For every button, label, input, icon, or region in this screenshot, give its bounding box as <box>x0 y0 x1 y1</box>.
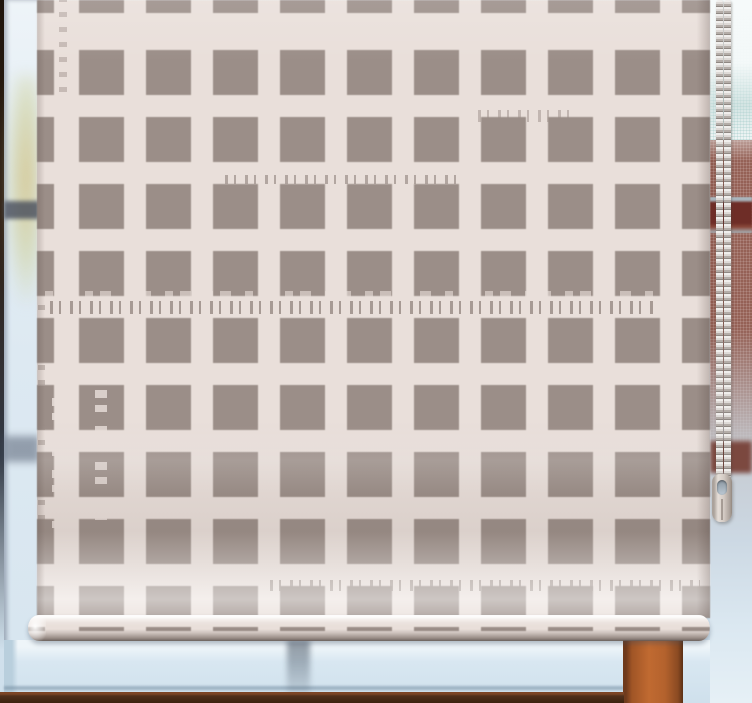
outer-frame-shadow-lower <box>4 436 40 462</box>
outer-frame-shadow-upper <box>4 201 40 219</box>
bottom-bar-shading <box>28 615 710 641</box>
connector-hole <box>717 480 727 495</box>
chain-connector <box>712 474 732 522</box>
window-mullion <box>623 640 683 703</box>
roller-blind <box>37 0 710 618</box>
window-sill <box>0 692 624 703</box>
blurred-outdoor-foliage <box>6 75 40 305</box>
window-muntin-shadow <box>287 640 310 694</box>
chain-strand-right <box>724 0 731 478</box>
bottom-bar-end-cap <box>28 615 46 641</box>
chain-strand-left <box>716 0 723 478</box>
window-photo <box>0 0 752 703</box>
blind-bottom-bar <box>28 615 710 641</box>
left-glass-strip <box>4 0 37 648</box>
outer-sash-line <box>4 686 624 690</box>
blind-shading <box>37 0 710 618</box>
connector-seam <box>721 499 723 520</box>
